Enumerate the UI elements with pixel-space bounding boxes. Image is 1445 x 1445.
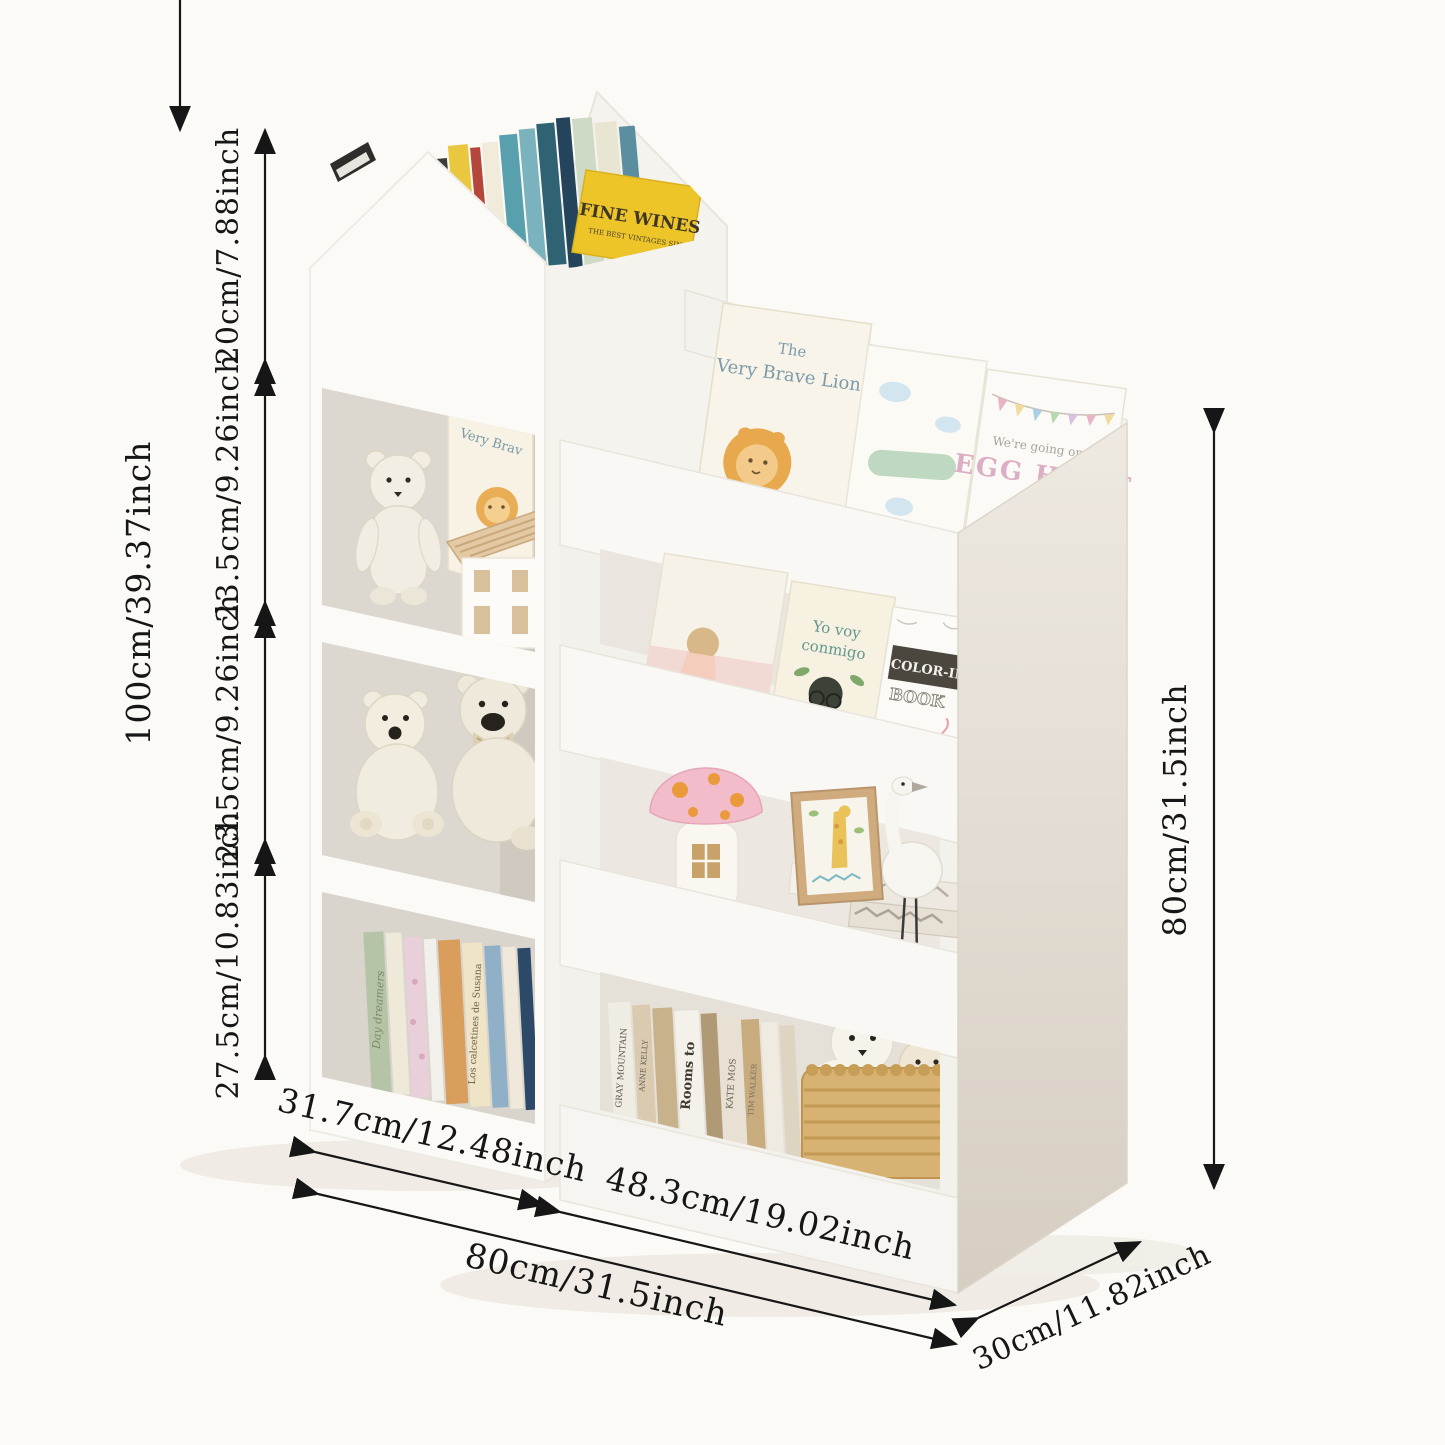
wicker-basket [802, 1064, 964, 1178]
bookshelf-illustration: FINE WINES THE BEST VINTAGES SINCE Very … [0, 0, 1445, 1445]
dim-label-right-height: 80cm/31.5inch [1156, 683, 1194, 936]
picture-frame-giraffe [791, 787, 883, 905]
right-unit-side-panel [958, 423, 1127, 1293]
dim-label-seg-mid1: 23.5cm/9.26inch [211, 354, 246, 623]
dim-label-total-height: 100cm/39.37inch [119, 441, 158, 746]
dim-label-seg-bottom: 27.5cm/10.83inch [211, 810, 246, 1099]
dim-label-seg-top: 20cm/7.88inch [211, 127, 246, 365]
product-dimension-diagram: FINE WINES THE BEST VINTAGES SINCE Very … [0, 0, 1445, 1445]
